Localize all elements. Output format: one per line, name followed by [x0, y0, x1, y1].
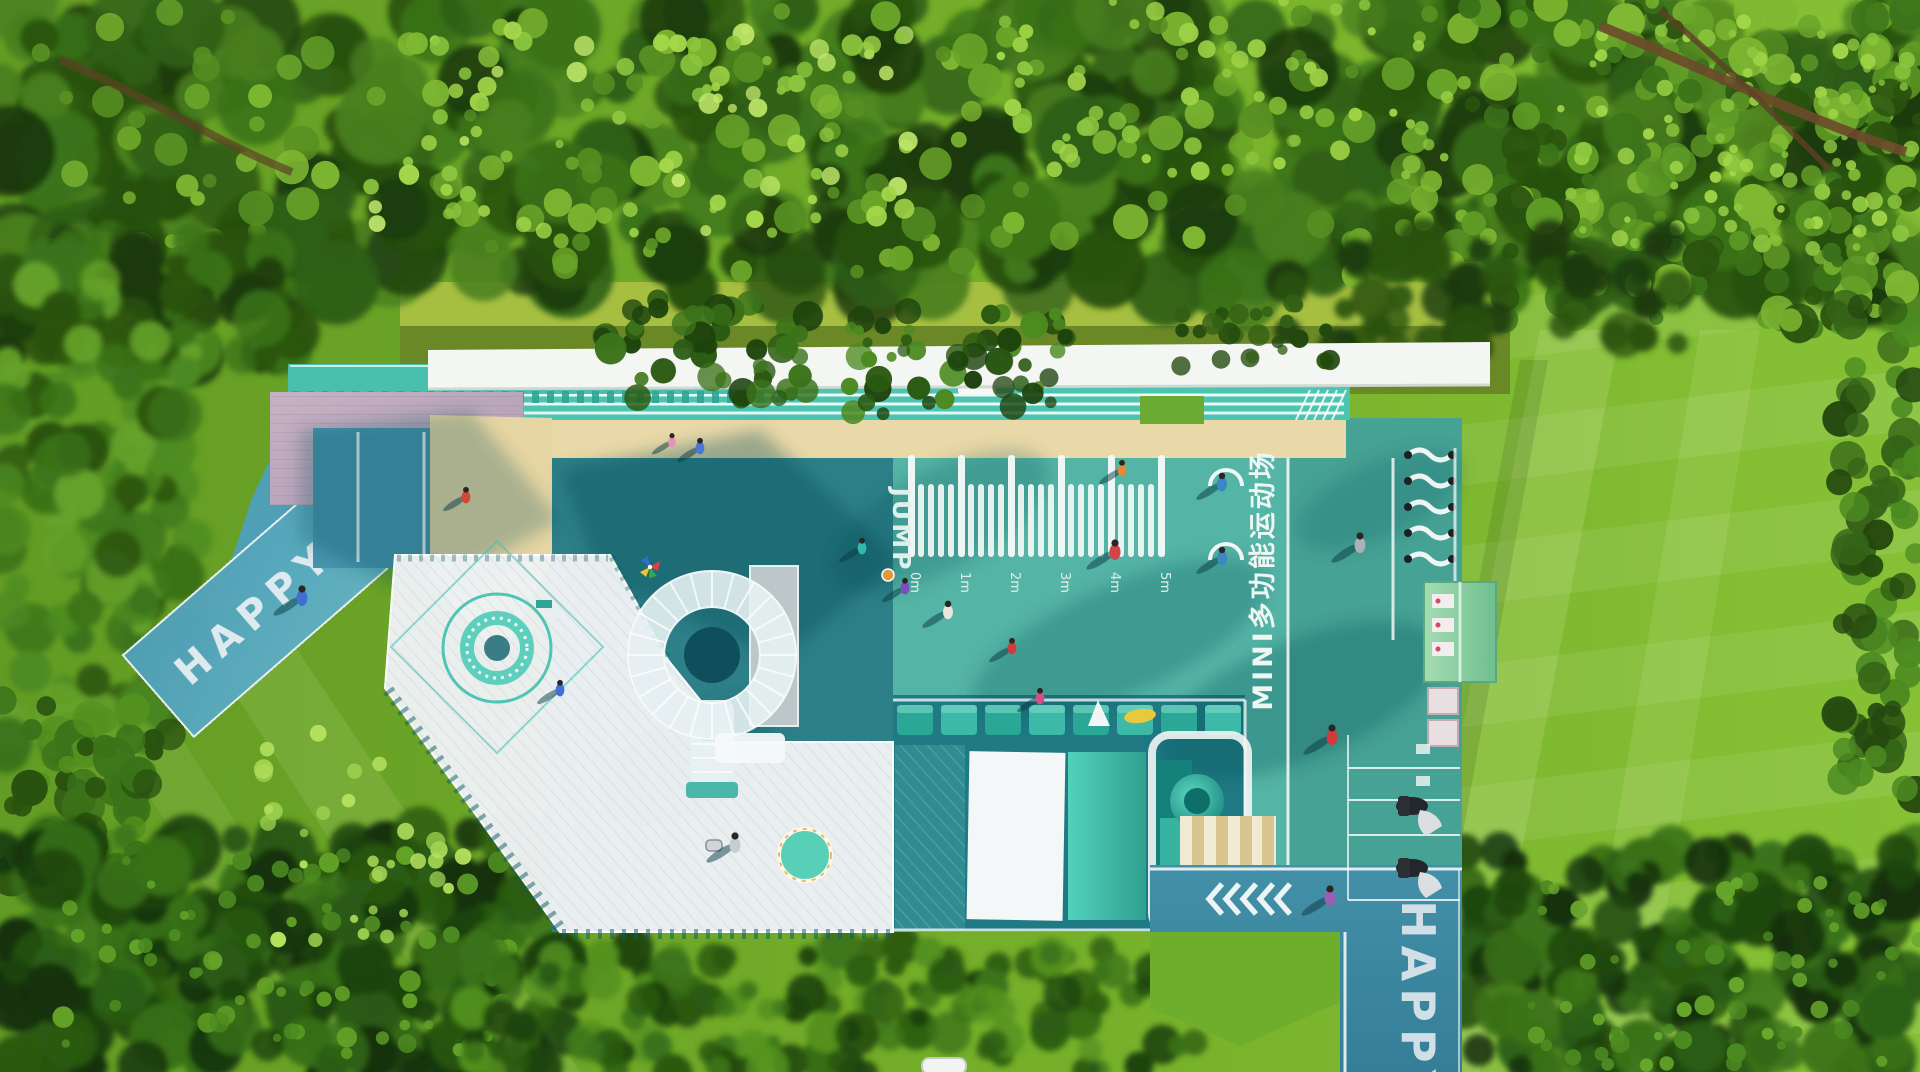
foliage-blob: [952, 33, 987, 68]
foliage-blob: [838, 119, 886, 167]
foliage-blob: [422, 80, 449, 107]
ruler-bar-short: [938, 484, 944, 557]
foliage-blob: [1565, 1049, 1581, 1065]
foliage-blob: [1801, 165, 1822, 186]
foliage-blob: [1059, 144, 1078, 163]
foliage-blob: [347, 764, 362, 779]
foliage-blob: [1834, 1021, 1853, 1040]
foliage-blob: [1670, 182, 1678, 190]
foliage-blob: [741, 26, 749, 34]
foliage-blob: [642, 109, 662, 129]
foliage-blob: [260, 815, 276, 831]
foliage-blob: [1285, 57, 1299, 71]
foliage-blob: [1625, 871, 1648, 894]
foliage-blob: [1225, 194, 1247, 216]
foliage-blob: [1280, 315, 1294, 329]
foliage-blob: [1734, 203, 1743, 212]
foliage-blob: [1465, 96, 1481, 112]
foliage-blob: [1224, 41, 1237, 54]
foliage-blob: [1610, 1034, 1629, 1053]
foliage-blob: [1441, 91, 1454, 104]
foliage-blob: [1053, 318, 1066, 331]
ruler-bar-short: [1098, 484, 1104, 557]
foliage-blob: [1740, 159, 1753, 172]
foliage-blob: [311, 161, 339, 189]
foliage-blob: [1575, 142, 1592, 159]
foliage-blob: [1627, 962, 1664, 999]
foliage-blob: [596, 207, 613, 224]
ruler-bar-short: [1048, 484, 1054, 557]
foliage-blob: [798, 946, 818, 966]
train-canopy-teal: [1068, 752, 1146, 920]
foliage-blob: [1793, 973, 1808, 988]
foliage-blob: [424, 1020, 433, 1029]
foliage-blob: [1557, 105, 1564, 112]
foliage-blob: [1654, 1032, 1663, 1041]
foliage-blob: [235, 995, 245, 1005]
foliage-blob: [37, 696, 57, 716]
foliage-blob: [1484, 927, 1542, 985]
foliage-blob: [1833, 43, 1849, 59]
foliage-blob: [997, 52, 1006, 61]
foliage-blob: [300, 829, 309, 838]
ruler-bar-short: [918, 484, 924, 557]
foliage-blob: [1666, 123, 1679, 136]
slide-exit-pad: [686, 782, 738, 798]
foliage-blob: [358, 928, 370, 940]
foliage-blob: [862, 337, 872, 347]
foliage-blob: [1667, 333, 1688, 354]
foliage-blob: [1018, 358, 1031, 371]
ruler-mark-label: 3m: [1057, 572, 1072, 593]
foliage-blob: [114, 474, 149, 509]
ruler-mark-label: 5m: [1157, 572, 1172, 593]
foliage-blob: [1655, 24, 1668, 37]
foliage-blob: [1222, 164, 1234, 176]
foliage-blob: [787, 974, 828, 1015]
foliage-blob: [951, 132, 967, 148]
foliage-blob: [1307, 210, 1335, 238]
foliage-blob: [1554, 969, 1593, 1008]
foliage-blob: [1781, 151, 1788, 158]
foliage-blob: [871, 1, 901, 31]
foliage-blob: [1093, 130, 1117, 154]
foliage-blob: [1762, 1028, 1774, 1040]
foliage-blob: [476, 98, 489, 111]
foliage-blob: [1050, 222, 1079, 251]
foliage-blob: [544, 189, 572, 217]
foliage-blob: [52, 1006, 74, 1028]
ruler-bar-tall: [1158, 455, 1165, 557]
foliage-blob: [192, 54, 220, 82]
foliage-blob: [335, 986, 350, 1001]
foliage-blob: [460, 136, 470, 146]
foliage-blob: [894, 199, 914, 219]
foliage-blob: [1015, 78, 1025, 88]
foliage-blob: [910, 1009, 928, 1027]
foliage-blob: [536, 223, 552, 239]
foliage-blob: [555, 140, 563, 148]
foliage-blob: [739, 981, 758, 1000]
foliage-blob: [699, 93, 720, 114]
foliage-blob: [1122, 125, 1140, 143]
foliage-blob: [1078, 1037, 1103, 1062]
foliage-blob: [1892, 225, 1909, 242]
foliage-blob: [288, 868, 303, 883]
foliage-blob: [1704, 190, 1717, 203]
foliage-blob: [418, 931, 436, 949]
foliage-blob: [1440, 153, 1449, 162]
foliage-blob: [218, 891, 236, 909]
foliage-blob: [737, 291, 762, 316]
foliage-blob: [674, 999, 694, 1019]
foliage-blob: [1790, 73, 1801, 84]
foliage-blob: [1824, 953, 1859, 988]
foliage-blob: [1601, 1058, 1614, 1071]
foliage-blob: [961, 101, 982, 122]
foliage-blob: [1777, 1041, 1786, 1050]
foliage-blob: [749, 99, 768, 118]
foliage-blob: [277, 54, 302, 79]
foliage-blob: [1045, 396, 1057, 408]
foliage-blob: [1330, 3, 1342, 15]
foliage-blob: [1782, 863, 1812, 893]
ruler-bar-tall: [958, 455, 965, 557]
foliage-blob: [1731, 877, 1743, 889]
foliage-blob: [672, 312, 696, 336]
foliage-blob: [746, 379, 775, 408]
foliage-blob: [1643, 128, 1654, 139]
foliage-blob: [1338, 239, 1372, 273]
foliage-blob: [1231, 51, 1248, 68]
ruler-mark-label: 2m: [1007, 572, 1022, 593]
ruler-bar-short: [988, 484, 994, 557]
foliage-blob: [1814, 184, 1830, 200]
foliage-blob: [632, 306, 651, 325]
foliage-blob: [1860, 54, 1875, 69]
foliage-blob: [248, 84, 272, 108]
foliage-blob: [316, 806, 330, 820]
foliage-blob: [655, 227, 671, 243]
foliage-blob: [1468, 238, 1492, 262]
foliage-blob: [1291, 5, 1313, 27]
foliage-blob: [742, 138, 766, 162]
foliage-blob: [1132, 50, 1178, 96]
foliage-blob: [564, 1027, 595, 1058]
foliage-blob: [341, 1048, 353, 1060]
foliage-blob: [1846, 377, 1875, 406]
foliage-blob: [1212, 350, 1231, 369]
foliage-blob: [85, 777, 106, 798]
foliage-blob: [593, 73, 615, 95]
foliage-blob: [1879, 80, 1885, 86]
foliage-blob: [1585, 189, 1599, 203]
foliage-blob: [919, 147, 952, 180]
foliage-blob: [845, 955, 877, 987]
foliage-blob: [1248, 324, 1270, 346]
foliage-blob: [203, 174, 217, 188]
foliage-blob: [301, 36, 335, 70]
foliage-blob: [858, 394, 875, 411]
foliage-blob: [1248, 39, 1266, 57]
foliage-blob: [1832, 528, 1869, 565]
foliage-blob: [249, 116, 264, 131]
foliage-blob: [746, 339, 767, 360]
foliage-blob: [1674, 1031, 1692, 1049]
foliage-blob: [337, 1027, 357, 1047]
foliage-blob: [602, 1039, 625, 1062]
foliage-blob: [117, 693, 150, 726]
foliage-blob: [1654, 211, 1666, 223]
foliage-blob: [1462, 211, 1486, 235]
foliage-blob: [999, 16, 1011, 28]
foliage-blob: [1315, 108, 1334, 127]
foliage-blob: [443, 926, 460, 943]
foliage-blob: [260, 742, 275, 757]
foliage-blob: [1209, 16, 1228, 35]
foliage-blob: [43, 530, 88, 575]
foliage-blob: [842, 34, 864, 56]
foliage-blob: [981, 305, 1000, 324]
foliage-blob: [1503, 243, 1519, 259]
foliage-blob: [787, 135, 805, 153]
foliage-blob: [1747, 47, 1758, 58]
foliage-blob: [1747, 192, 1778, 223]
foliage-blob: [234, 290, 291, 347]
foliage-blob: [1743, 68, 1753, 78]
foliage-blob: [935, 389, 955, 409]
foliage-blob: [1113, 204, 1148, 239]
foliage-blob: [1565, 188, 1576, 199]
foliage-blob: [426, 832, 445, 851]
foliage-blob: [866, 206, 887, 227]
foliage-blob: [665, 151, 683, 169]
foliage-blob: [687, 37, 702, 52]
foliage-blob: [367, 856, 378, 867]
foliage-blob: [1822, 696, 1857, 731]
foliage-blob: [273, 1034, 281, 1042]
foliage-blob: [429, 871, 445, 887]
foliage-blob: [1554, 19, 1581, 46]
foliage-blob: [627, 983, 661, 1017]
foliage-blob: [629, 228, 639, 238]
foliage-blob: [1839, 492, 1869, 522]
foliage-blob: [862, 981, 905, 1024]
foliage-blob: [1801, 54, 1818, 71]
foliage-blob: [310, 725, 327, 742]
foliage-blob: [369, 215, 386, 232]
foliage-blob: [1389, 109, 1397, 117]
foliage-blob: [948, 248, 975, 275]
foliage-blob: [1406, 119, 1416, 129]
foliage-blob: [1839, 93, 1851, 105]
foliage-blob: [1656, 270, 1693, 307]
foliage-blob: [64, 325, 102, 363]
foliage-blob: [398, 32, 421, 55]
foliage-blob: [1030, 1011, 1070, 1051]
foliage-blob: [987, 348, 1013, 374]
foliage-blob: [572, 233, 590, 251]
foliage-blob: [284, 1023, 300, 1039]
foliage-blob: [1457, 76, 1471, 90]
foliage-blob: [478, 205, 490, 217]
foliage-blob: [850, 265, 863, 278]
foliage-blob: [1537, 906, 1547, 916]
foliage-blob: [317, 992, 332, 1007]
foliage-blob: [835, 144, 848, 157]
foliage-blob: [1043, 974, 1082, 1013]
foliage-blob: [1848, 294, 1873, 319]
foliage-blob: [1683, 208, 1699, 224]
foliage-blob: [1612, 258, 1650, 296]
foliage-blob: [147, 880, 156, 889]
foliage-blob: [148, 387, 202, 441]
foliage-blob: [1191, 162, 1210, 181]
foliage-blob: [1866, 33, 1879, 46]
foliage-blob: [1475, 981, 1532, 1038]
foliage-blob: [133, 769, 163, 799]
foliage-blob: [1771, 235, 1782, 246]
foliage-blob: [651, 358, 676, 383]
foliage-blob: [1548, 883, 1559, 894]
foliage-blob: [40, 382, 77, 419]
foliage-blob: [471, 126, 482, 137]
foliage-blob: [907, 377, 930, 400]
foliage-blob: [24, 849, 85, 910]
foliage-blob: [709, 66, 729, 86]
foliage-blob: [1618, 148, 1635, 165]
foliage-blob: [1480, 64, 1517, 101]
foliage-blob: [1198, 40, 1216, 58]
foliage-blob: [1729, 977, 1745, 993]
foliage-blob: [1729, 231, 1749, 251]
foliage-blob: [1361, 316, 1384, 339]
foliage-blob: [1612, 230, 1628, 246]
foliage-blob: [1718, 206, 1728, 216]
foliage-blob: [62, 900, 77, 915]
foliage-blob: [144, 953, 157, 966]
foliage-blob: [372, 757, 387, 772]
foliage-blob: [1595, 60, 1611, 76]
foliage-blob: [1721, 99, 1734, 112]
foliage-blob: [32, 44, 50, 62]
foliage-blob: [1174, 306, 1190, 322]
foliage-blob: [369, 905, 378, 914]
foliage-blob: [673, 339, 694, 360]
foliage-blob: [209, 1012, 229, 1032]
foliage-blob: [797, 62, 813, 78]
foliage-blob: [1889, 573, 1915, 599]
foliage-blob: [1368, 27, 1376, 35]
foliage-blob: [574, 36, 594, 56]
ruler-bar-short: [1038, 484, 1044, 557]
foliage-blob: [1300, 105, 1314, 119]
foliage-blob: [1854, 903, 1870, 919]
foliage-blob: [899, 132, 918, 151]
foliage-blob: [1017, 61, 1031, 75]
foliage-blob: [1148, 191, 1168, 211]
foliage-blob: [460, 186, 476, 202]
foliage-blob: [1872, 211, 1888, 227]
foliage-blob: [964, 371, 982, 389]
foliage-blob: [1605, 113, 1643, 151]
foliage-blob: [128, 111, 145, 128]
foliage-blob: [1710, 171, 1722, 183]
foliage-blob: [479, 155, 504, 180]
ruler-bar-short: [968, 484, 974, 557]
foliage-blob: [1002, 212, 1024, 234]
foliage-blob: [1288, 332, 1300, 344]
foliage-blob: [461, 956, 492, 987]
foliage-blob: [1865, 192, 1883, 210]
foliage-blob: [1753, 235, 1771, 253]
foliage-blob: [270, 932, 286, 948]
foliage-blob: [440, 184, 452, 196]
foliage-blob: [1624, 216, 1630, 222]
foliage-blob: [1868, 703, 1886, 721]
foliage-blob: [1888, 195, 1902, 209]
foliage-blob: [753, 358, 768, 373]
foliage-blob: [1777, 205, 1785, 213]
foliage-blob: [1493, 884, 1528, 919]
foliage-blob: [300, 980, 314, 994]
foliage-blob: [879, 66, 894, 81]
ruler-mark-label: 1m: [957, 572, 972, 593]
foliage-blob: [1087, 992, 1110, 1015]
foliage-blob: [1582, 174, 1595, 187]
foliage-blob: [94, 530, 141, 577]
foliage-blob: [1676, 940, 1690, 954]
foliage-blob: [566, 157, 579, 170]
foliage-blob: [635, 372, 649, 386]
foliage-blob: [1715, 133, 1725, 143]
foliage-blob: [1040, 942, 1063, 965]
foliage-blob: [516, 217, 532, 233]
ruler-bar-short: [978, 484, 984, 557]
foliage-blob: [983, 1030, 1008, 1055]
foliage-blob: [1705, 945, 1725, 965]
foliage-blob: [80, 261, 120, 301]
happy-exit-text: HAPPY: [1391, 900, 1445, 1072]
foliage-blob: [553, 254, 578, 279]
foliage-blob: [1262, 306, 1273, 317]
foliage-blob: [888, 246, 913, 271]
foliage-blob: [1770, 163, 1784, 177]
foliage-blob: [1729, 145, 1738, 154]
foliage-blob: [587, 940, 619, 972]
foliage-blob: [67, 591, 103, 627]
foliage-blob: [1566, 855, 1606, 895]
foliage-blob: [286, 917, 296, 927]
foliage-blob: [1013, 114, 1032, 133]
foliage-blob: [822, 167, 840, 185]
foliage-blob: [1382, 58, 1415, 91]
foliage-blob: [1660, 1056, 1674, 1070]
foliage-blob: [62, 1039, 70, 1047]
foliage-blob: [1632, 927, 1657, 952]
foliage-blob: [122, 856, 131, 865]
foliage-blob: [961, 194, 985, 218]
foliage-blob: [1630, 238, 1641, 249]
foliage-blob: [1527, 1001, 1535, 1009]
ruler-bar-short: [1028, 484, 1034, 557]
foliage-blob: [1167, 168, 1177, 178]
foliage-blob: [881, 186, 896, 201]
ruler-bar-short: [1078, 484, 1084, 557]
ruler-bar-short: [1138, 484, 1144, 557]
foliage-blob: [1854, 224, 1867, 237]
foliage-blob: [1677, 1002, 1692, 1017]
